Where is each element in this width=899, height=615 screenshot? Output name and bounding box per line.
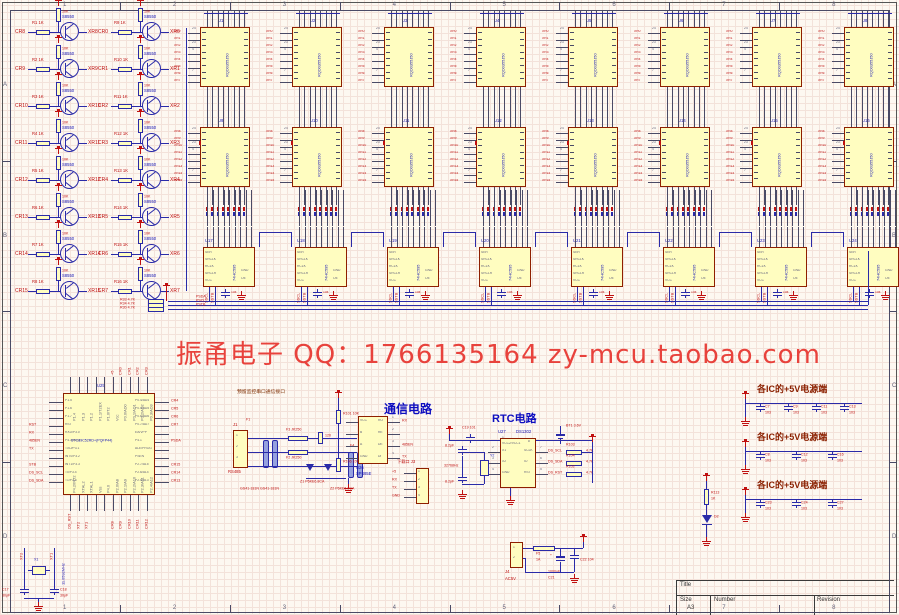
ic-inner-tick bbox=[796, 145, 800, 146]
ic-inner-tick bbox=[796, 58, 800, 59]
wire bbox=[669, 287, 670, 301]
ic-inner-tick bbox=[796, 32, 800, 33]
pin-number: 23 bbox=[192, 41, 196, 44]
pin-number: 4 bbox=[560, 148, 562, 151]
power-rail-symbol bbox=[57, 257, 60, 259]
wire bbox=[207, 111, 208, 127]
wire bbox=[786, 90, 787, 111]
wire bbox=[832, 68, 844, 69]
wire bbox=[155, 466, 169, 467]
wire bbox=[464, 182, 476, 183]
wire bbox=[497, 292, 506, 293]
wire bbox=[895, 227, 896, 247]
net-label-mark bbox=[567, 141, 569, 145]
wire bbox=[868, 251, 869, 305]
net-label: XR4 bbox=[542, 58, 548, 61]
wire bbox=[464, 154, 476, 155]
ic-inner-tick bbox=[888, 39, 892, 40]
wire bbox=[79, 143, 87, 144]
net-label: XR2 bbox=[358, 44, 364, 47]
pin-number: 7 bbox=[192, 169, 194, 172]
resistor-body bbox=[336, 458, 341, 472]
wire bbox=[605, 295, 614, 296]
wire bbox=[307, 287, 308, 305]
pin-number: 4 bbox=[492, 468, 494, 471]
ic-inner-tick bbox=[704, 45, 708, 46]
wire bbox=[505, 227, 506, 247]
wire bbox=[188, 33, 200, 34]
ic-inner-tick bbox=[386, 72, 390, 73]
wire bbox=[883, 90, 884, 111]
pin-name: TXD/P3.1 bbox=[65, 447, 79, 450]
wire bbox=[188, 75, 200, 76]
net-label-mark bbox=[843, 141, 845, 145]
wire bbox=[489, 190, 490, 226]
wire bbox=[719, 232, 720, 247]
wire bbox=[234, 111, 235, 127]
wire bbox=[372, 161, 384, 162]
ic-inner-tick bbox=[704, 178, 708, 179]
net-label: CR9 bbox=[119, 521, 123, 529]
ic-inner-tick bbox=[846, 172, 850, 173]
net-label: XR10 bbox=[266, 144, 274, 147]
ic-inner-tick bbox=[662, 45, 666, 46]
ic-inner-tick bbox=[754, 65, 758, 66]
net-label: TX bbox=[392, 486, 397, 490]
net-label: XR4 bbox=[818, 58, 824, 61]
wire bbox=[111, 106, 118, 107]
transistor-part: S8550 bbox=[62, 274, 74, 278]
wire bbox=[504, 90, 505, 111]
wire bbox=[743, 473, 748, 474]
wire bbox=[667, 227, 668, 247]
zone-letter-left: B bbox=[3, 233, 7, 239]
fuse-label: F2 JK250 bbox=[286, 456, 301, 460]
ic-inner-tick bbox=[520, 52, 524, 53]
wire bbox=[614, 190, 615, 226]
wire bbox=[87, 495, 88, 511]
wire bbox=[237, 295, 246, 296]
wire bbox=[424, 190, 425, 226]
pin-name: RCLK bbox=[665, 265, 674, 268]
wire bbox=[536, 463, 548, 464]
wire bbox=[140, 22, 141, 32]
wire bbox=[262, 438, 357, 439]
wire bbox=[49, 474, 63, 475]
wire bbox=[832, 154, 844, 155]
wire bbox=[218, 90, 219, 111]
wire bbox=[761, 287, 762, 301]
wire bbox=[675, 287, 676, 305]
wire bbox=[523, 548, 533, 549]
wire bbox=[706, 505, 707, 515]
wire bbox=[188, 161, 200, 162]
net-label-mark bbox=[659, 141, 661, 145]
resistor-label: 10K bbox=[62, 195, 68, 199]
net-label: XR2 bbox=[174, 44, 180, 47]
cap-value: 104 bbox=[691, 291, 697, 294]
pin-number: 7 bbox=[468, 69, 470, 72]
net-label: CR11 bbox=[136, 519, 140, 529]
wire bbox=[773, 292, 782, 293]
ic-inner-tick bbox=[520, 132, 524, 133]
ic-inner-tick bbox=[570, 172, 574, 173]
wire bbox=[742, 393, 749, 394]
wire bbox=[803, 190, 804, 226]
wire bbox=[428, 90, 429, 111]
net-label: XR10 bbox=[634, 144, 642, 147]
wire bbox=[862, 90, 863, 111]
zone-number-top: 3 bbox=[283, 2, 286, 8]
ic-inner-tick bbox=[846, 139, 850, 140]
ic-inner-tick bbox=[796, 78, 800, 79]
battery-label: BT1 3.6V bbox=[566, 424, 581, 428]
resistor-label: R11 1K bbox=[114, 95, 128, 99]
pin-name: P1.1/T2EX bbox=[99, 402, 103, 421]
net-label: CR3 bbox=[98, 141, 108, 146]
pin-name: SRCLR bbox=[481, 272, 492, 275]
wire bbox=[248, 438, 262, 439]
ic-inner-tick bbox=[336, 139, 340, 140]
wire bbox=[251, 190, 252, 226]
wire bbox=[570, 578, 579, 579]
wire bbox=[742, 519, 749, 520]
wire bbox=[49, 458, 63, 459]
pin-number: 4 bbox=[468, 48, 470, 51]
wire bbox=[575, 111, 576, 127]
wire bbox=[740, 175, 752, 176]
pin-name: GND bbox=[360, 455, 367, 458]
wire bbox=[244, 111, 245, 127]
wire bbox=[209, 287, 210, 301]
wire bbox=[346, 446, 358, 447]
zone-number-top: 4 bbox=[393, 2, 396, 8]
wire bbox=[305, 190, 306, 226]
wire bbox=[391, 227, 392, 247]
wire bbox=[87, 377, 88, 393]
net-label: 485EN bbox=[29, 439, 40, 443]
wire bbox=[832, 133, 844, 134]
zone-number-top: 7 bbox=[722, 2, 725, 8]
power-rail-symbol bbox=[744, 391, 747, 393]
matrix-ic bbox=[752, 127, 802, 187]
pin-number: 6 bbox=[540, 457, 542, 460]
wire bbox=[155, 418, 169, 419]
pin-number: 2 bbox=[392, 428, 394, 431]
cap-value: 104 bbox=[875, 291, 881, 294]
wire bbox=[239, 299, 244, 300]
matrix-ic bbox=[568, 27, 618, 87]
wire bbox=[606, 297, 613, 298]
net-label: XR2 bbox=[450, 44, 456, 47]
pin-name: P2.6/A14 bbox=[135, 471, 149, 474]
resistor-body bbox=[138, 45, 143, 59]
matrix-ic bbox=[292, 27, 342, 87]
ic-inner-tick bbox=[386, 145, 390, 146]
ic-inner-tick bbox=[570, 165, 574, 166]
wire bbox=[296, 13, 340, 14]
wire bbox=[695, 227, 696, 247]
wire bbox=[464, 175, 476, 176]
wire bbox=[787, 190, 788, 226]
wire bbox=[706, 481, 707, 489]
net-label: XR2 bbox=[266, 44, 272, 47]
wire bbox=[592, 442, 593, 483]
tvs-diode bbox=[324, 464, 332, 471]
wire bbox=[372, 133, 384, 134]
pin-number: 2 bbox=[513, 556, 515, 559]
wire bbox=[501, 295, 502, 298]
wire bbox=[280, 33, 292, 34]
wire bbox=[244, 90, 245, 111]
resistor-label: R15 1K bbox=[114, 243, 128, 247]
resistor-body bbox=[138, 267, 143, 281]
net-label: XR7 bbox=[450, 79, 456, 82]
wire bbox=[583, 287, 584, 305]
resistor-body bbox=[566, 472, 582, 477]
wire bbox=[672, 90, 673, 111]
wire bbox=[505, 190, 506, 226]
wire bbox=[138, 495, 139, 511]
net-label: XR15 bbox=[174, 179, 182, 182]
wire bbox=[280, 154, 292, 155]
pin-name: GND bbox=[517, 269, 524, 272]
pin-name: GND bbox=[609, 269, 616, 272]
wire bbox=[280, 133, 292, 134]
net-label: XR10 bbox=[542, 144, 550, 147]
wire bbox=[878, 90, 879, 111]
pin-name: RCLK bbox=[757, 265, 766, 268]
net-label: XR1 bbox=[358, 37, 364, 40]
ic-inner-tick bbox=[662, 145, 666, 146]
ic-inner-tick bbox=[520, 172, 524, 173]
wire bbox=[111, 143, 118, 144]
wire bbox=[161, 69, 169, 70]
wire bbox=[700, 190, 701, 226]
ic-inner-tick bbox=[888, 45, 892, 46]
pin-number: 23 bbox=[284, 41, 288, 44]
wire bbox=[759, 227, 760, 247]
wire bbox=[779, 2, 780, 10]
wire bbox=[49, 482, 63, 483]
resistor-ref: R103 bbox=[566, 443, 575, 447]
net-label: XR2 bbox=[818, 44, 824, 47]
power-rail-symbol bbox=[591, 434, 594, 436]
pin-number: 4 bbox=[652, 48, 654, 51]
wire bbox=[580, 90, 581, 111]
ic-inner-tick bbox=[754, 72, 758, 73]
wire bbox=[462, 484, 484, 485]
pin-name: VCC bbox=[849, 279, 856, 282]
wire bbox=[388, 458, 400, 459]
ic-inner-tick bbox=[704, 152, 708, 153]
ic-inner-tick bbox=[520, 139, 524, 140]
ic-inner-tick bbox=[796, 172, 800, 173]
wire bbox=[346, 434, 358, 435]
pin-name: P2.1/A9 bbox=[124, 479, 128, 493]
wire bbox=[577, 287, 578, 301]
net-label: XR12 bbox=[818, 158, 826, 161]
wire bbox=[188, 133, 200, 134]
net-label: XR4 bbox=[450, 58, 456, 61]
wire bbox=[742, 489, 749, 490]
wire bbox=[10, 10, 11, 613]
wire bbox=[760, 505, 761, 508]
ic-inner-tick bbox=[612, 39, 616, 40]
wire bbox=[856, 111, 857, 127]
ic-inner-tick bbox=[244, 65, 248, 66]
wire bbox=[155, 410, 169, 411]
ic-inner-tick bbox=[754, 78, 758, 79]
pin-number: 4 bbox=[376, 148, 378, 151]
net-label: XR0 bbox=[174, 30, 180, 33]
wire bbox=[700, 227, 701, 247]
matrix-ic bbox=[384, 27, 434, 87]
net-label: XR15 bbox=[818, 179, 826, 182]
net-label: XR3 bbox=[174, 51, 180, 54]
wire bbox=[120, 605, 121, 613]
wire bbox=[764, 111, 765, 127]
resistor-label: R4 1K bbox=[32, 132, 44, 136]
pin-name: OE bbox=[793, 277, 798, 280]
ic-inner-tick bbox=[704, 58, 708, 59]
wire bbox=[331, 299, 336, 300]
wire bbox=[756, 502, 765, 503]
power-bank-title: 各IC的+5V电源端 bbox=[757, 481, 827, 490]
pin-name: VCC bbox=[757, 279, 764, 282]
wire bbox=[404, 497, 416, 498]
wire bbox=[608, 227, 609, 247]
wire bbox=[514, 297, 521, 298]
power-rail-symbol bbox=[448, 426, 451, 428]
pin-name: P0.2/AD2 bbox=[141, 404, 145, 421]
wire bbox=[780, 90, 781, 111]
wire bbox=[58, 96, 59, 106]
net-label: XR12 bbox=[634, 158, 642, 161]
wire bbox=[343, 190, 344, 226]
net-label: XR11 bbox=[818, 151, 826, 154]
wire bbox=[372, 47, 384, 48]
wire bbox=[556, 175, 568, 176]
ic-inner-tick bbox=[570, 72, 574, 73]
net-label-mark bbox=[383, 141, 385, 145]
net-label: DS_SDA bbox=[548, 460, 562, 464]
resistor-label: 10K bbox=[144, 158, 150, 162]
ic-inner-tick bbox=[846, 132, 850, 133]
net-label: XR9 bbox=[726, 137, 732, 140]
wire bbox=[832, 168, 844, 169]
wire bbox=[235, 227, 236, 247]
resistor-body bbox=[138, 193, 143, 207]
wire bbox=[853, 287, 854, 301]
wire bbox=[500, 227, 501, 247]
ic-inner-tick bbox=[294, 158, 298, 159]
wire bbox=[485, 287, 486, 301]
wire bbox=[697, 295, 706, 296]
wire bbox=[811, 232, 812, 247]
ic-inner-tick bbox=[846, 32, 850, 33]
ic-inner-tick bbox=[612, 145, 616, 146]
wire bbox=[586, 227, 587, 247]
pin-name: SRCLK bbox=[757, 258, 768, 261]
pin-name: GND bbox=[333, 269, 340, 272]
matrix-ic bbox=[384, 127, 434, 187]
wire bbox=[140, 133, 141, 143]
wire bbox=[811, 232, 843, 233]
net-label: XR0 bbox=[358, 30, 364, 33]
wire bbox=[316, 190, 317, 226]
ic-inner-tick bbox=[336, 72, 340, 73]
pin-number: 4 bbox=[744, 48, 746, 51]
wire bbox=[388, 422, 400, 423]
pin-name: XTAL1 bbox=[90, 481, 94, 493]
wire bbox=[796, 457, 797, 460]
gdt-tube bbox=[272, 440, 278, 468]
ic-inner-tick bbox=[662, 32, 666, 33]
net-label: +5 bbox=[392, 470, 396, 474]
wire bbox=[678, 227, 679, 247]
ic-inner-tick bbox=[570, 39, 574, 40]
wire bbox=[740, 82, 752, 83]
wire bbox=[54, 548, 55, 586]
wire bbox=[648, 182, 660, 183]
wire bbox=[240, 190, 241, 226]
ic-inner-tick bbox=[520, 165, 524, 166]
wire bbox=[767, 287, 768, 305]
crystal-value: 32768Hz bbox=[444, 464, 458, 468]
wire bbox=[556, 82, 568, 83]
wire bbox=[589, 436, 596, 437]
wire bbox=[745, 499, 862, 500]
wire bbox=[792, 502, 801, 503]
wire bbox=[791, 111, 792, 127]
ic-inner-tick bbox=[520, 65, 524, 66]
ic-inner-tick bbox=[336, 172, 340, 173]
tvs-diode bbox=[306, 464, 314, 471]
ic-inner-tick bbox=[520, 152, 524, 153]
wire bbox=[188, 154, 200, 155]
pin-name: VCC bbox=[389, 279, 396, 282]
net-label: XR13 bbox=[726, 165, 734, 168]
wire bbox=[299, 227, 300, 247]
pin-number: 23 bbox=[284, 141, 288, 144]
cap-value: 103 bbox=[801, 507, 807, 511]
pin-name: P1.2 bbox=[90, 413, 94, 421]
wire bbox=[383, 232, 384, 247]
net-label: XR11 bbox=[174, 151, 182, 154]
resistor-body bbox=[56, 45, 61, 59]
fuse-ref: F5 bbox=[536, 552, 540, 556]
wire bbox=[525, 558, 526, 572]
ic-inner-tick bbox=[704, 158, 708, 159]
pin-name: SER bbox=[757, 251, 764, 254]
wire bbox=[399, 287, 400, 305]
wire bbox=[321, 227, 322, 247]
pin-name: P1.4 bbox=[73, 413, 77, 421]
wire bbox=[832, 82, 844, 83]
resistor-label: 10K bbox=[62, 47, 68, 51]
resistor-label: 10K bbox=[62, 121, 68, 125]
pin-number: 24 bbox=[468, 127, 472, 130]
wire bbox=[890, 190, 891, 226]
wire bbox=[572, 582, 577, 583]
ic-inner-tick bbox=[386, 152, 390, 153]
wire bbox=[372, 54, 384, 55]
wire bbox=[878, 111, 879, 127]
ic-inner-tick bbox=[612, 32, 616, 33]
resistor-label: 10K bbox=[144, 47, 150, 51]
pin-name: VCC bbox=[481, 279, 488, 282]
